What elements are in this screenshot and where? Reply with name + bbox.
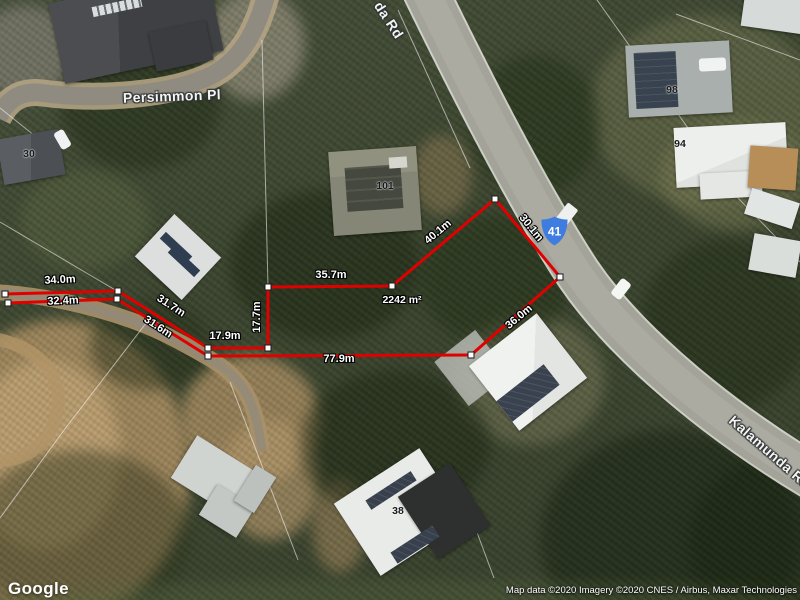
terrain-patch [470,55,600,195]
measurement-line [8,299,117,303]
roof-panels [345,164,404,212]
car [610,277,632,300]
vertex-handle[interactable] [5,300,11,306]
measurement-label: 32.4m [47,294,79,308]
building-roof [748,145,799,190]
map-attribution: Map data ©2020 Imagery ©2020 CNES / Airb… [506,585,797,596]
measurement-label: 17.9m [209,330,240,342]
terrain-patch [90,300,210,390]
vertex-handle[interactable] [115,288,121,294]
route-number: 41 [548,225,562,239]
measurement-label: 34.0m [44,273,76,287]
satellite-map-viewport[interactable]: 34.0m32.4m31.7m31.6m17.9m17.7m35.7m40.1m… [0,0,800,600]
solar-panels [634,51,679,109]
vertex-handle[interactable] [114,296,120,302]
vertex-handle[interactable] [492,196,498,202]
roof-detail [389,156,408,168]
google-logo[interactable]: Google [8,579,69,599]
route-41-shield: 41 [541,216,568,246]
terrain-patch [20,170,150,270]
vertex-handle[interactable] [2,291,8,297]
measurement-line [5,291,118,294]
vertex-handle[interactable] [265,345,271,351]
measurement-label: 77.9m [323,353,354,365]
terrain-patch [412,135,472,215]
car [699,57,727,71]
street-label: da Rd [371,0,407,42]
